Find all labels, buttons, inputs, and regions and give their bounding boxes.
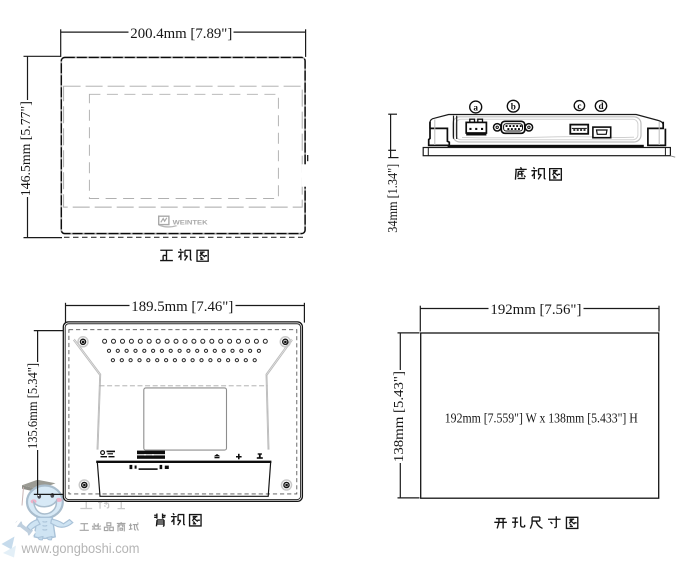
svg-text:34mm [1.34"]: 34mm [1.34"] bbox=[385, 164, 400, 233]
svg-text:135.6mm [5.34"]: 135.6mm [5.34"] bbox=[25, 363, 40, 449]
svg-text:192mm [7.559"] W x 138mm [5.4: 192mm [7.559"] W x 138mm [5.433"] H bbox=[445, 410, 638, 425]
svg-text:c: c bbox=[577, 101, 581, 111]
svg-text:d: d bbox=[598, 101, 603, 111]
svg-text:WEINTEK: WEINTEK bbox=[173, 220, 208, 227]
svg-text:a: a bbox=[473, 102, 478, 112]
svg-text:192mm [7.56"]: 192mm [7.56"] bbox=[490, 302, 581, 318]
svg-text:b: b bbox=[511, 102, 516, 112]
svg-text:189.5mm [7.46"]: 189.5mm [7.46"] bbox=[131, 299, 233, 315]
svg-text:www.gongboshi.com: www.gongboshi.com bbox=[21, 541, 140, 557]
svg-text:138mm [5.43"]: 138mm [5.43"] bbox=[391, 371, 406, 462]
svg-text:146.5mm [5.77"]: 146.5mm [5.77"] bbox=[18, 101, 33, 196]
svg-text:200.4mm [7.89"]: 200.4mm [7.89"] bbox=[130, 26, 232, 42]
